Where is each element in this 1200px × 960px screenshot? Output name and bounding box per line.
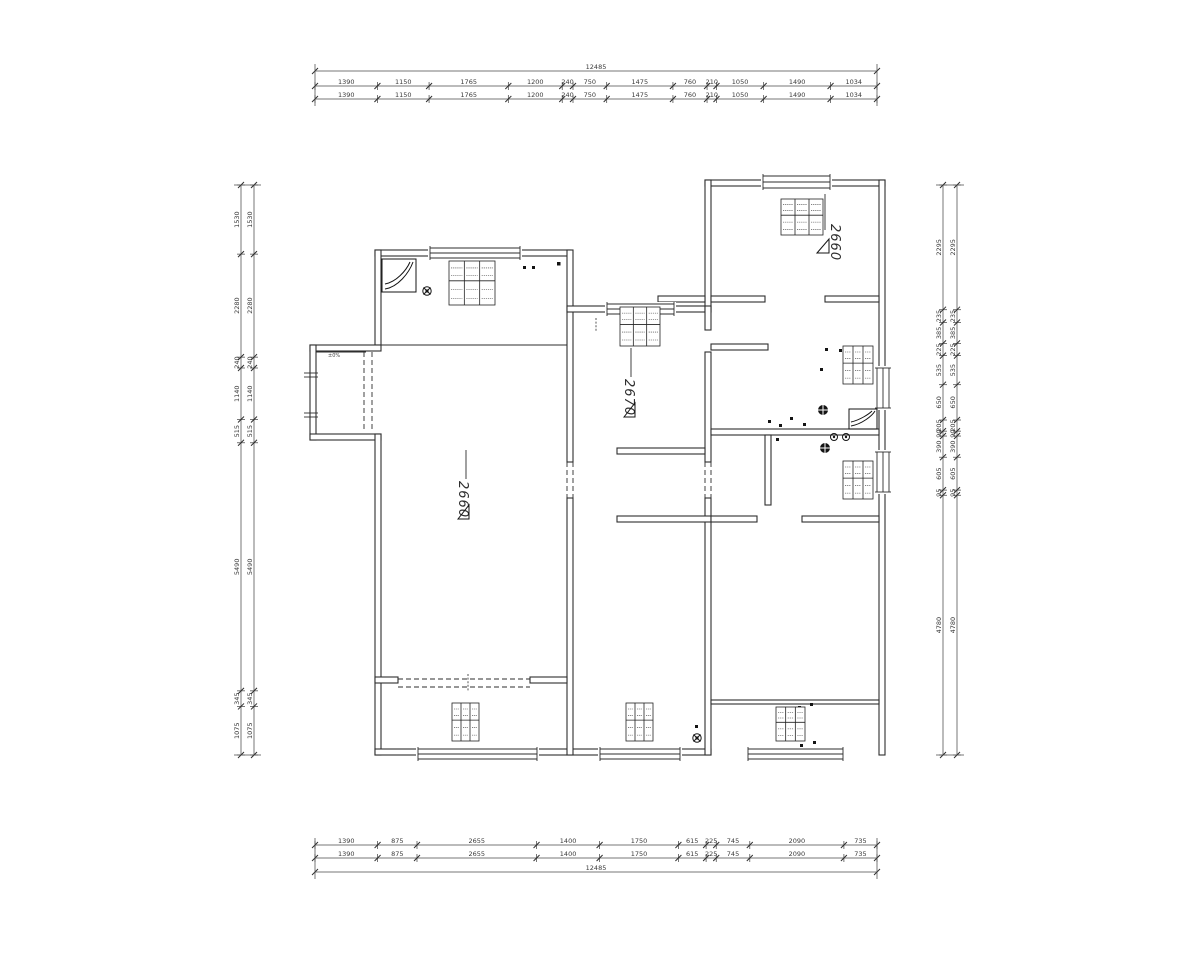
window-bottom-middle	[598, 747, 682, 761]
svg-text:735: 735	[854, 850, 866, 858]
svg-text:345: 345	[233, 692, 241, 704]
svg-text:1490: 1490	[789, 78, 806, 86]
wall-segment	[705, 352, 711, 462]
spec-table	[626, 703, 653, 741]
svg-text:1400: 1400	[560, 837, 577, 845]
wall-segment	[310, 434, 381, 440]
wall-segment	[567, 498, 573, 755]
svg-text:735: 735	[854, 837, 866, 845]
svg-text:875: 875	[391, 837, 403, 845]
svg-text:745: 745	[727, 850, 739, 858]
wall-segment	[705, 306, 711, 330]
svg-text:1530: 1530	[246, 211, 254, 228]
svg-text:95: 95	[949, 489, 957, 497]
svg-text:1150: 1150	[395, 78, 412, 86]
dim-chain-bottom: 1390875265514001750615225745209073513908…	[312, 837, 880, 879]
wall-segment	[705, 180, 711, 312]
svg-text:615: 615	[686, 850, 698, 858]
svg-text:760: 760	[684, 78, 696, 86]
svg-text:240: 240	[561, 91, 573, 99]
wall-segment	[375, 677, 398, 683]
svg-text:1390: 1390	[338, 78, 355, 86]
wall-segment	[825, 296, 879, 302]
svg-text:615: 615	[686, 837, 698, 845]
spec-table	[843, 346, 873, 384]
svg-text:225: 225	[949, 343, 957, 355]
wall-segment	[711, 429, 879, 435]
windows	[304, 174, 893, 761]
svg-text:2655: 2655	[469, 850, 486, 858]
window-right-upper	[875, 366, 893, 410]
wall-structure	[310, 180, 885, 755]
wall-segment	[375, 250, 381, 345]
cad-floorplan-canvas: 2660 2670 2660 ±0% 139011501765120024075…	[0, 0, 1200, 960]
svg-text:12485: 12485	[586, 864, 607, 872]
svg-text:605: 605	[949, 467, 957, 479]
spec-table	[449, 261, 495, 305]
svg-text:515: 515	[246, 425, 254, 437]
svg-text:1390: 1390	[338, 837, 355, 845]
wall-segment	[310, 345, 381, 351]
wall-segment	[617, 448, 705, 454]
svg-text:4780: 4780	[935, 617, 943, 634]
svg-text:385: 385	[949, 327, 957, 339]
svg-text:605: 605	[935, 467, 943, 479]
svg-text:240: 240	[561, 78, 573, 86]
svg-text:1530: 1530	[233, 211, 241, 228]
svg-text:1750: 1750	[631, 850, 648, 858]
dim-chain-left: 1530228024011405155490345107515302280240…	[233, 182, 261, 758]
svg-text:745: 745	[727, 837, 739, 845]
wall-segment	[705, 498, 711, 755]
svg-text:12485: 12485	[586, 63, 607, 71]
window-top-right	[761, 174, 832, 190]
svg-text:2295: 2295	[949, 239, 957, 256]
svg-text:1490: 1490	[789, 91, 806, 99]
spec-table	[776, 707, 805, 741]
svg-text:2280: 2280	[233, 297, 241, 314]
window-bottom-left	[416, 747, 539, 761]
svg-text:240: 240	[246, 356, 254, 368]
wall-segment	[658, 296, 705, 302]
svg-text:1140: 1140	[233, 385, 241, 402]
svg-text:90: 90	[935, 429, 943, 437]
svg-text:1390: 1390	[338, 91, 355, 99]
ceiling-height-left: 2660	[455, 450, 470, 519]
svg-text:1390: 1390	[338, 850, 355, 858]
svg-text:225: 225	[705, 850, 717, 858]
svg-text:750: 750	[584, 78, 596, 86]
wall-segment	[711, 344, 768, 350]
wall-segment	[617, 516, 711, 522]
dim-chain-right: 2295235385225535650205903906059547802295…	[935, 182, 964, 758]
svg-text:1400: 1400	[560, 850, 577, 858]
wall-segment	[530, 677, 567, 683]
corner-fold-small-icon	[849, 409, 877, 429]
svg-text:2655: 2655	[469, 837, 486, 845]
corner-fold-icon	[382, 259, 416, 292]
window-top-left	[428, 246, 522, 260]
svg-text:1200: 1200	[527, 91, 544, 99]
svg-text:2090: 2090	[789, 837, 806, 845]
svg-text:235: 235	[935, 310, 943, 322]
svg-text:1140: 1140	[246, 385, 254, 402]
svg-text:875: 875	[391, 850, 403, 858]
svg-text:240: 240	[233, 356, 241, 368]
ceiling-fixture-icon	[423, 287, 431, 295]
svg-text:235: 235	[949, 310, 957, 322]
wall-segment	[765, 435, 771, 505]
wall-segment	[567, 250, 573, 462]
svg-text:345: 345	[246, 692, 254, 704]
window-bottom-right	[746, 747, 845, 761]
spec-table	[620, 307, 660, 346]
floorplan-drawing: 2660 2670 2660 ±0% 139011501765120024075…	[0, 0, 1200, 960]
dim-chain-top: 1390115017651200240750147576021010501490…	[312, 63, 880, 106]
svg-text:4780: 4780	[949, 617, 957, 634]
svg-text:390: 390	[935, 440, 943, 452]
svg-text:1150: 1150	[395, 91, 412, 99]
wall-segment	[711, 700, 879, 704]
svg-text:1475: 1475	[632, 78, 649, 86]
svg-text:1050: 1050	[732, 91, 749, 99]
svg-text:1075: 1075	[246, 722, 254, 739]
svg-text:225: 225	[935, 343, 943, 355]
svg-text:2295: 2295	[935, 239, 943, 256]
svg-text:390: 390	[949, 440, 957, 452]
wall-segment	[802, 516, 879, 522]
svg-text:5490: 5490	[246, 559, 254, 576]
wall-segment	[375, 434, 381, 755]
spec-table	[843, 461, 873, 499]
svg-text:95: 95	[935, 489, 943, 497]
svg-text:210: 210	[706, 78, 718, 86]
exhaust-fan-icon	[818, 405, 828, 415]
window-right-lower	[875, 450, 893, 494]
svg-text:5490: 5490	[233, 559, 241, 576]
wall-segment	[711, 296, 765, 302]
svg-text:1765: 1765	[460, 78, 477, 86]
svg-text:2090: 2090	[789, 850, 806, 858]
svg-text:650: 650	[949, 396, 957, 408]
svg-text:1765: 1765	[460, 91, 477, 99]
svg-text:535: 535	[949, 364, 957, 376]
platform-note: ±0%	[328, 353, 340, 359]
svg-text:1050: 1050	[732, 78, 749, 86]
wall-segment	[310, 345, 316, 440]
svg-text:2280: 2280	[246, 297, 254, 314]
svg-text:210: 210	[706, 91, 718, 99]
svg-text:90: 90	[949, 429, 957, 437]
svg-text:1034: 1034	[846, 91, 863, 99]
wall-segment	[711, 516, 757, 522]
svg-text:225: 225	[705, 837, 717, 845]
svg-text:760: 760	[684, 91, 696, 99]
svg-text:650: 650	[935, 396, 943, 408]
spec-table	[781, 199, 823, 235]
ceiling-height-middle: 2670	[621, 348, 636, 417]
svg-text:535: 535	[935, 364, 943, 376]
svg-text:515: 515	[233, 425, 241, 437]
svg-text:1750: 1750	[631, 837, 648, 845]
svg-text:1034: 1034	[846, 78, 863, 86]
svg-text:1200: 1200	[527, 78, 544, 86]
svg-text:1475: 1475	[632, 91, 649, 99]
ceiling-fixture-icon	[693, 734, 701, 742]
exhaust-fan-icon	[820, 443, 830, 453]
svg-text:385: 385	[935, 327, 943, 339]
svg-text:1075: 1075	[233, 722, 241, 739]
svg-text:750: 750	[584, 91, 596, 99]
spec-table	[452, 703, 479, 741]
